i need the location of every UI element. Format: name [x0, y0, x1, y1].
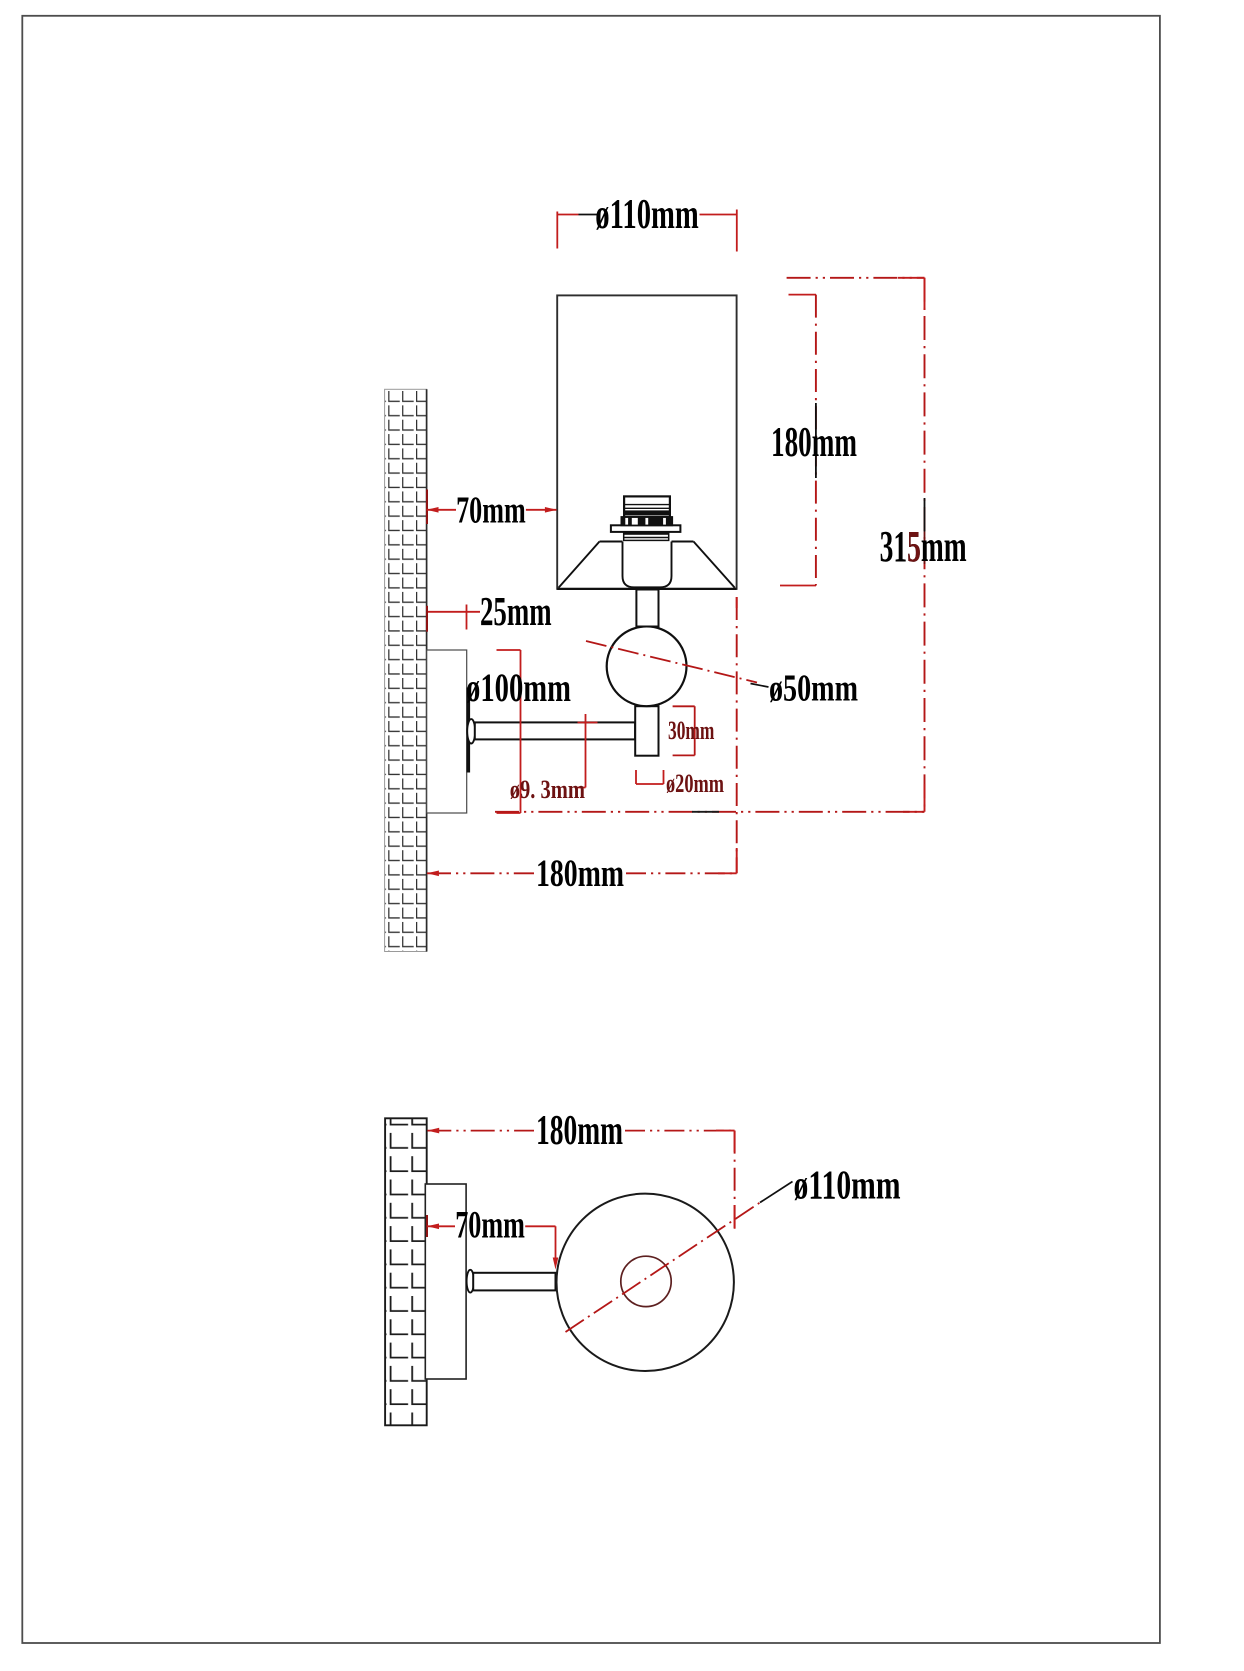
svg-text:ø20mm: ø20mm	[666, 769, 724, 798]
svg-text:180mm: 180mm	[536, 852, 624, 895]
svg-text:ø110mm: ø110mm	[794, 1162, 901, 1208]
svg-text:ø9. 3mm: ø9. 3mm	[510, 775, 586, 804]
svg-text:ø100mm: ø100mm	[466, 665, 571, 710]
svg-text:180mm: 180mm	[536, 1108, 623, 1154]
svg-text:ø50mm: ø50mm	[769, 668, 858, 710]
svg-text:30mm: 30mm	[668, 716, 715, 745]
svg-text:70mm: 70mm	[456, 490, 526, 532]
svg-text:180mm: 180mm	[771, 420, 857, 466]
svg-text:315mm: 315mm	[880, 522, 967, 571]
svg-text:70mm: 70mm	[455, 1204, 525, 1247]
svg-text:25mm: 25mm	[480, 588, 552, 634]
svg-text:ø110mm: ø110mm	[595, 192, 699, 238]
